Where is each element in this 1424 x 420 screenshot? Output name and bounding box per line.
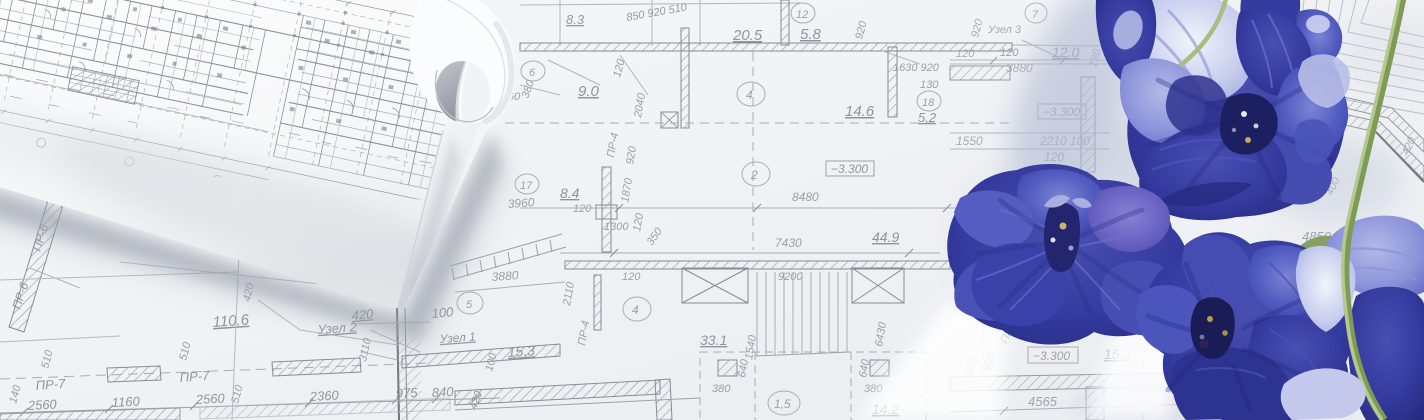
svg-text:4: 4 bbox=[746, 88, 753, 102]
svg-text:2560: 2560 bbox=[194, 390, 225, 407]
svg-text:120: 120 bbox=[573, 203, 592, 215]
svg-text:840: 840 bbox=[431, 384, 454, 400]
svg-text:20.5: 20.5 bbox=[732, 27, 763, 44]
svg-text:3960: 3960 bbox=[507, 195, 535, 211]
svg-text:1550: 1550 bbox=[956, 134, 983, 148]
svg-text:14.6: 14.6 bbox=[845, 103, 875, 120]
svg-text:44.9: 44.9 bbox=[872, 229, 899, 245]
svg-text:4: 4 bbox=[632, 303, 639, 317]
svg-text:5.2: 5.2 bbox=[918, 110, 937, 125]
svg-text:5: 5 bbox=[466, 299, 473, 311]
svg-text:120: 120 bbox=[956, 48, 975, 60]
svg-text:1300: 1300 bbox=[604, 221, 629, 233]
svg-text:8480: 8480 bbox=[792, 190, 819, 204]
svg-text:8.4: 8.4 bbox=[560, 185, 580, 201]
svg-text:7: 7 bbox=[1032, 9, 1039, 21]
svg-text:380: 380 bbox=[712, 383, 731, 395]
svg-text:2: 2 bbox=[750, 168, 758, 182]
svg-text:1630 920: 1630 920 bbox=[893, 62, 940, 74]
svg-text:ПР-7: ПР-7 bbox=[179, 368, 210, 385]
svg-text:Узел 3: Узел 3 bbox=[987, 24, 1022, 36]
svg-text:5.8: 5.8 bbox=[800, 26, 822, 43]
svg-text:17: 17 bbox=[520, 180, 533, 192]
svg-text:975: 975 bbox=[395, 385, 418, 401]
svg-text:120: 120 bbox=[1000, 47, 1019, 59]
svg-text:3880: 3880 bbox=[491, 268, 519, 284]
svg-text:−3.300: −3.300 bbox=[831, 162, 868, 176]
svg-text:120: 120 bbox=[622, 271, 641, 283]
svg-text:18: 18 bbox=[922, 97, 935, 109]
svg-text:−3.300: −3.300 bbox=[1033, 349, 1070, 363]
svg-text:33.1: 33.1 bbox=[700, 332, 727, 348]
svg-text:9.0: 9.0 bbox=[578, 83, 600, 100]
svg-text:2560: 2560 bbox=[26, 396, 57, 413]
svg-text:ПР-7: ПР-7 bbox=[35, 376, 66, 393]
svg-text:130: 130 bbox=[920, 79, 939, 91]
svg-text:2360: 2360 bbox=[308, 387, 339, 404]
svg-text:110.6: 110.6 bbox=[212, 311, 250, 331]
svg-text:9200: 9200 bbox=[778, 271, 803, 283]
svg-text:8.3: 8.3 bbox=[566, 12, 585, 27]
svg-text:1160: 1160 bbox=[111, 394, 140, 410]
svg-text:12: 12 bbox=[796, 9, 808, 21]
svg-text:Узел 1: Узел 1 bbox=[438, 330, 476, 347]
svg-text:7430: 7430 bbox=[775, 236, 802, 250]
svg-text:1,5: 1,5 bbox=[774, 397, 791, 411]
svg-text:4565: 4565 bbox=[1028, 394, 1058, 409]
svg-text:6: 6 bbox=[529, 67, 536, 79]
